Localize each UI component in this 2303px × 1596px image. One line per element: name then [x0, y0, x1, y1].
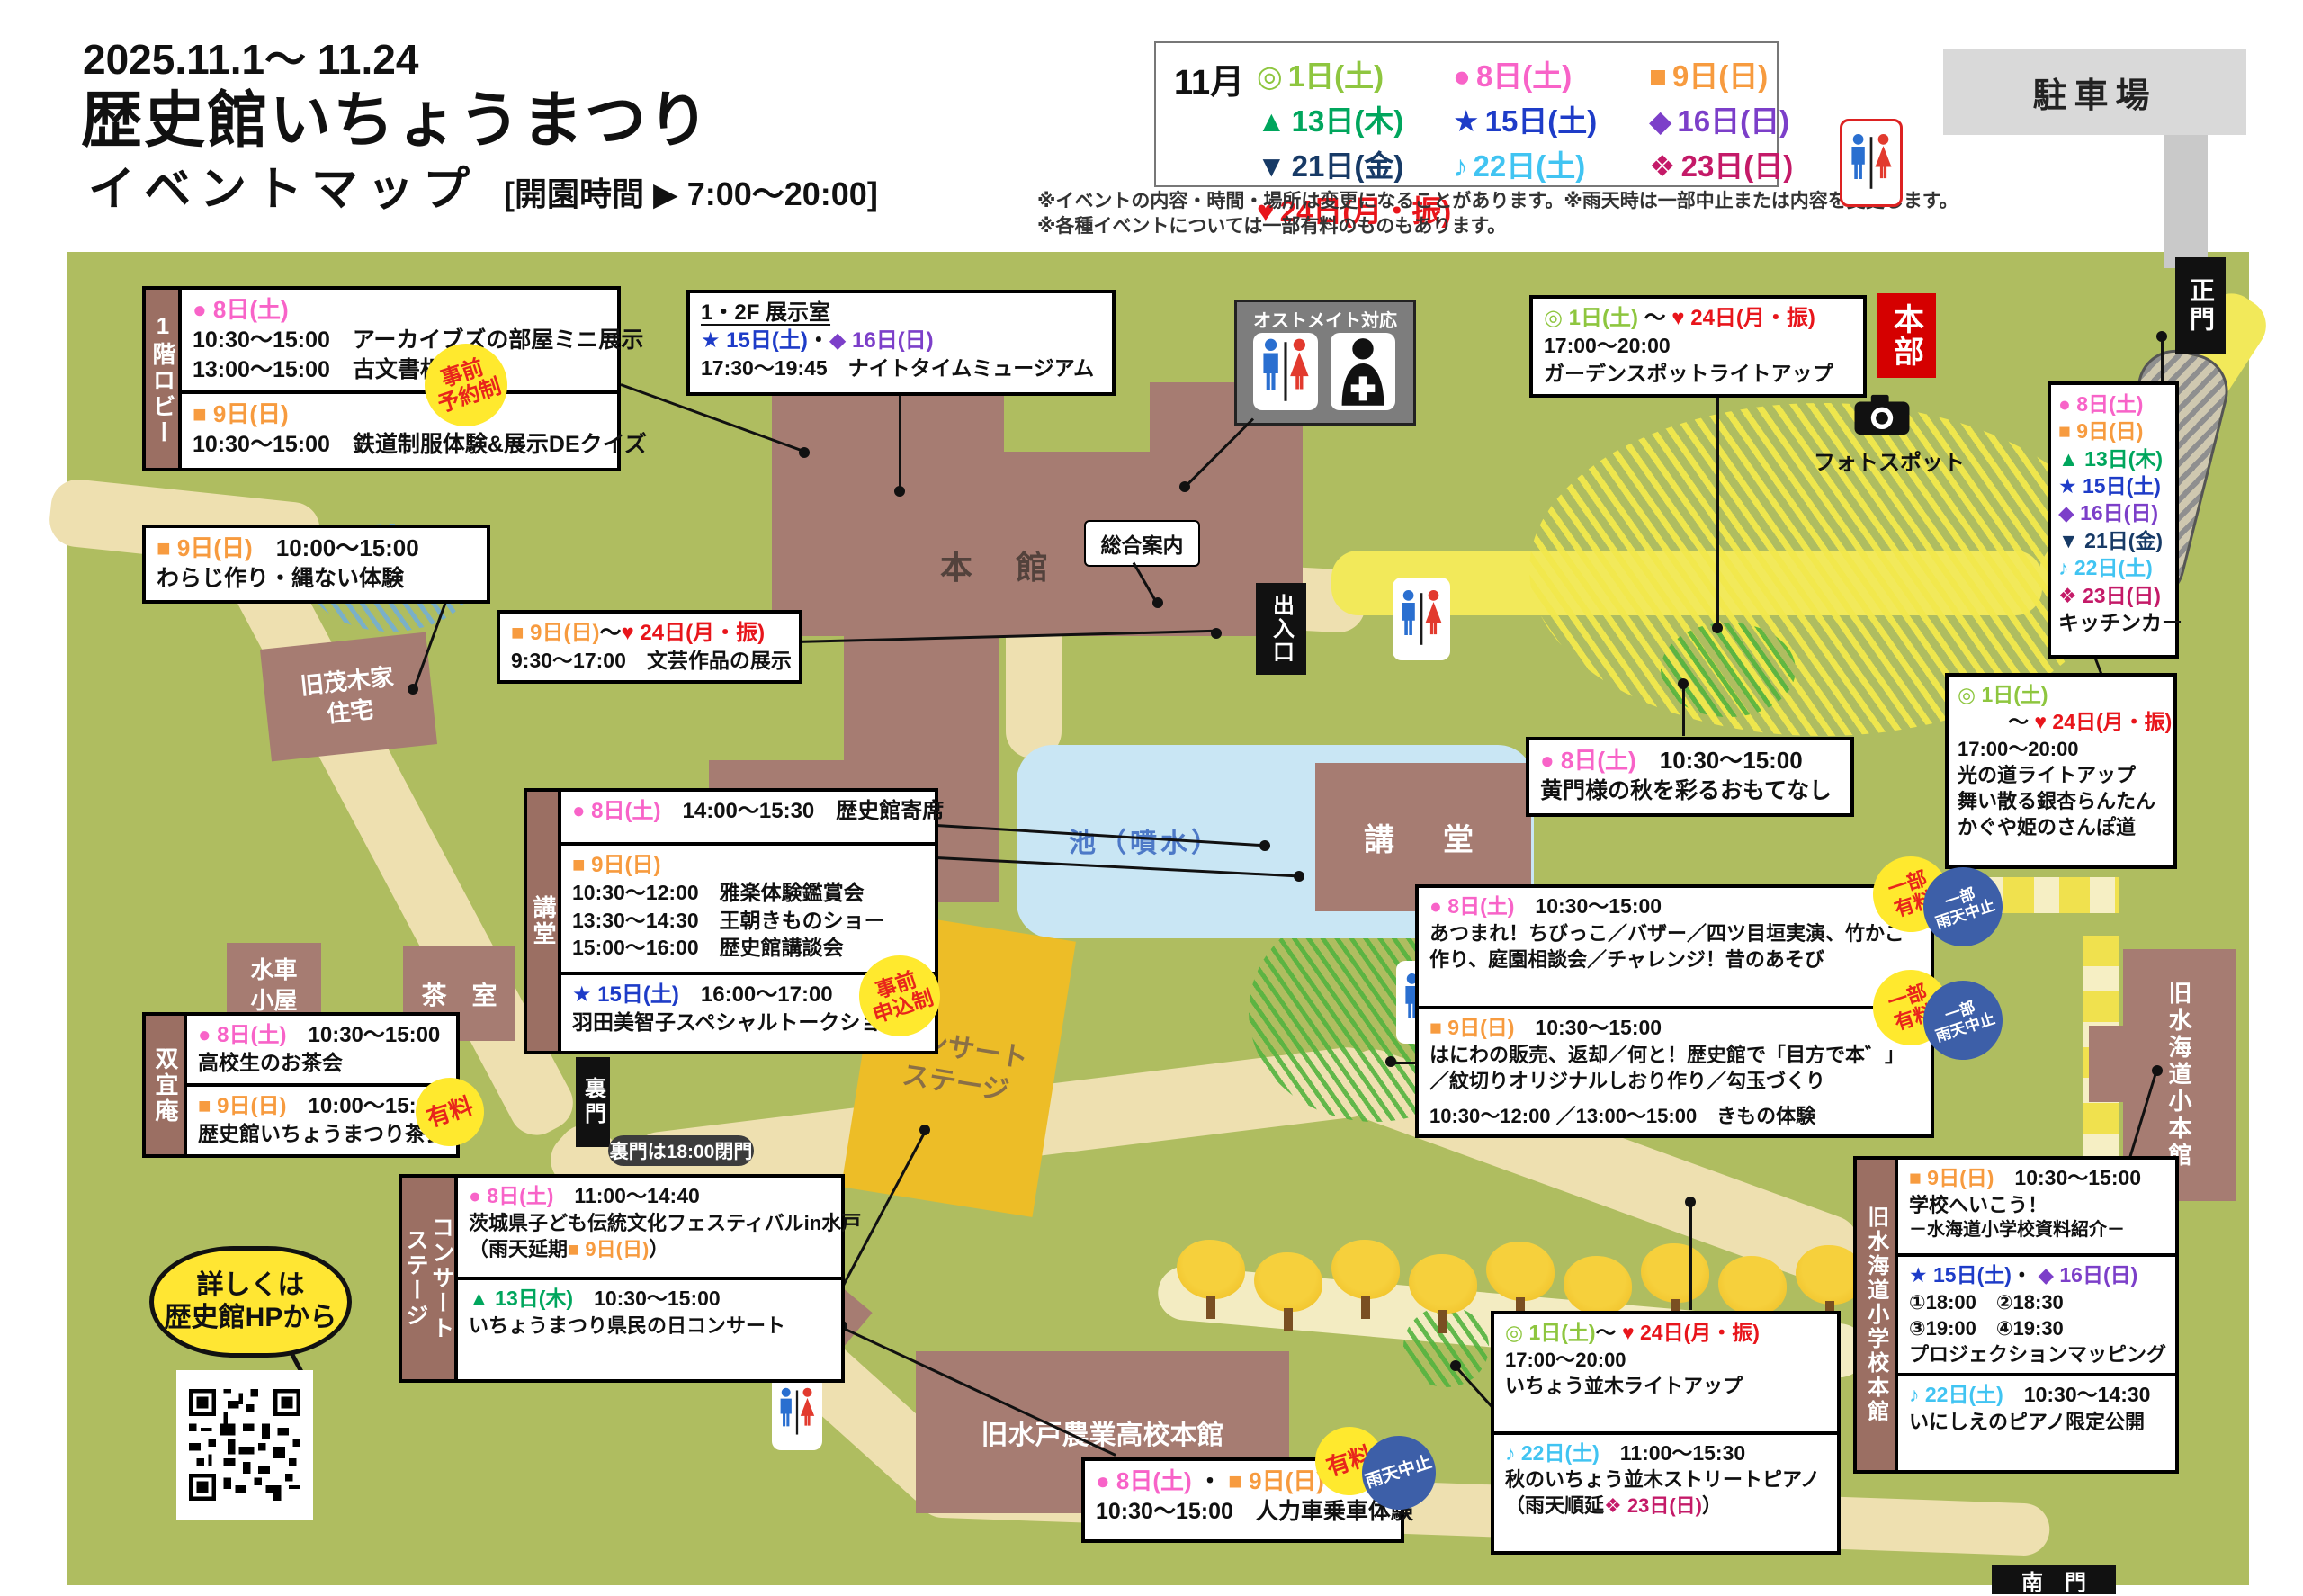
legend-day-22: ♪22日(土) [1453, 142, 1649, 185]
lobby-section-9th: ■ 9日(日) 10:30～15:00 鉄道制服体験&展示DEクイズ [182, 390, 617, 468]
ostomate-icon [1331, 333, 1395, 410]
legend-day-13: ▲13日(木) [1257, 97, 1453, 140]
back-gate-note: 裏門は18:00閉門 [608, 1135, 754, 1166]
concert-section-8th: ● 8日(土) 11:00～14:40 茨城県子ども伝統文化フェスティバルin水… [458, 1178, 841, 1277]
leader-line [1689, 1202, 1692, 1310]
disclaimer-notes: ※イベントの内容・時間・場所は変更になることがあります。※雨天時は一部中止または… [1037, 189, 1958, 240]
leader-dot [408, 684, 418, 695]
leader-line [899, 396, 901, 489]
bungei-section: ■ 9日(日)～♥ 24日(月・振) 9:30～17:00 文芸作品の展示 [500, 614, 799, 680]
event-box-namiki-piano: ◎ 1日(土)～ ♥ 24日(月・振) 17:00～20:00 いちょう並木ライ… [1491, 1311, 1841, 1555]
komon-section: ● 8日(土) 10:30～15:00 黄門様の秋を彩るおもてなし [1529, 740, 1850, 813]
day8-icon: ● [1453, 59, 1471, 93]
event-box-garden-lightup: ◎ 1日(土) ～ ♥ 24日(月・振) 17:00～20:00 ガーデンスポッ… [1529, 295, 1867, 398]
moteki-house: 旧茂木家 住宅 [260, 632, 437, 762]
legend-day-15: ★15日(土) [1453, 97, 1649, 140]
event-box-school: 旧水海道小学校本館 ■ 9日(日) 10:30～15:00 学校へいこう！ －水… [1853, 1156, 2179, 1474]
parking-area: 駐車場 [1943, 49, 2246, 135]
school-section-9th: ■ 9日(日) 10:30～15:00 学校へいこう！ －水海道小学校資料紹介－ [1898, 1160, 2175, 1253]
day22-icon: ♪ [1453, 149, 1468, 183]
legend-month: 11月 [1174, 54, 1244, 103]
disclaimer-line2: ※各種イベントについては一部有料のものもあります。 [1037, 214, 1958, 239]
day9-icon: ■ [1649, 59, 1667, 93]
green-zone-1 [1661, 623, 1796, 717]
leader-dot [1211, 628, 1222, 639]
open-hours: [開園時間 ▶ 7:00～20:00] [504, 168, 878, 215]
restroom-icon [1393, 578, 1450, 660]
mitsukaido-school-annex [2089, 1026, 2123, 1102]
school-strip-label: 旧水海道小学校本館 [1857, 1160, 1898, 1470]
legend-day-23: ❖23日(日) [1649, 142, 1845, 185]
poster-subtitle-row: イベントマップ [開園時間 ▶ 7:00～20:00] [88, 151, 878, 219]
main-hall-connector [844, 632, 999, 767]
day23-icon: ❖ [1649, 149, 1676, 183]
leader-dot [2152, 1065, 2163, 1076]
auditorium-section-9th: ■ 9日(日) 10:30～12:00 雅楽体験鑑賞会 13:30～14:30 … [561, 842, 935, 972]
leader-dot [1678, 678, 1689, 689]
day13-icon: ▲ [1257, 104, 1286, 138]
school-section-piano: ♪ 22日(土) 10:30～14:30 いにしえのピアノ限定公開 [1898, 1373, 2175, 1470]
leader-dot [1450, 1360, 1461, 1371]
ostomate-label: オストメイト対応 [1237, 306, 1413, 332]
street-piano-section: ♪ 22日(土) 11:00～15:30 秋のいちょう並木ストリートピアノ （雨… [1494, 1431, 1837, 1552]
event-map-poster: { "header": { "dates": "2025.11.1～ 11.24… [0, 0, 2303, 1594]
ginkgo-tree [1254, 1252, 1322, 1312]
hp-speech-bubble: 詳しくは 歴史館HPから [149, 1246, 352, 1358]
auditorium-strip-label: 講堂 [527, 792, 561, 1051]
day15-icon: ★ [1453, 104, 1480, 138]
waraji-section: ■ 9日(日) 10:00～15:00 わらじ作り・縄ない体験 [146, 528, 487, 600]
sogian-strip-label: 双宜庵 [146, 1016, 187, 1154]
leader-line [1682, 684, 1685, 736]
info-desk: 総合案内 [1084, 520, 1200, 567]
ginkgo-tree [1331, 1240, 1400, 1299]
leader-dot [1294, 871, 1304, 882]
legend-day-16: ◆16日(日) [1649, 97, 1845, 140]
ginkgo-tree [1409, 1254, 1477, 1314]
leader-dot [1259, 840, 1270, 851]
concert-section-13th: ▲ 13日(木) 10:30～15:00 いちょうまつり県民の日コンサート [458, 1277, 841, 1379]
leader-dot [1385, 1056, 1396, 1067]
restroom-icon [772, 1375, 822, 1450]
camera-icon [1853, 392, 1911, 437]
back-gate: 裏門 [576, 1057, 610, 1147]
leader-dot [2156, 331, 2167, 342]
plaza-section-9th: ■ 9日(日) 10:30～15:00 はにわの販売、返却／何と！歴史館で「目方… [1419, 1006, 1931, 1134]
entrance-gate: 出入口 [1256, 583, 1306, 675]
hikari-section: ◎ 1日(土) ～ ♥ 24日(月・振) 17:00～20:00 光の道ライトア… [1949, 677, 2173, 865]
exhibit-section: 1・2F 展示室 ★ 15日(土)・◆ 16日(日) 17:30～19:45 ナ… [690, 293, 1112, 392]
disclaimer-line1: ※イベントの内容・時間・場所は変更になることがあります。※雨天時は一部中止または… [1037, 189, 1958, 214]
legend-day-9: ■9日(日) [1649, 52, 1845, 95]
south-gate: 南 門 [1992, 1565, 2116, 1594]
day21-icon: ▼ [1257, 149, 1286, 183]
event-box-exhibit-room: 1・2F 展示室 ★ 15日(土)・◆ 16日(日) 17:30～19:45 ナ… [686, 290, 1116, 396]
festival-hq: 本部 [1877, 293, 1936, 378]
leader-line [1716, 398, 1719, 628]
event-box-komon: ● 8日(土) 10:30～15:00 黄門様の秋を彩るおもてなし [1526, 737, 1854, 817]
event-box-sogian: 双宜庵 ● 8日(土) 10:30～15:00 高校生のお茶会 ■ 9日(日) … [142, 1012, 460, 1158]
date-legend: 11月 ◎1日(土) ●8日(土) ■9日(日) ▲13日(木) ★15日(土)… [1154, 41, 1779, 187]
event-box-bungei: ■ 9日(日)～♥ 24日(月・振) 9:30～17:00 文芸作品の展示 [497, 610, 802, 684]
event-box-waraji: ■ 9日(日) 10:00～15:00 わらじ作り・縄ない体験 [142, 525, 490, 604]
parking-road [2164, 133, 2208, 268]
ginkgo-tree [1564, 1256, 1632, 1315]
kitchen-car-list: ● 8日(土) ■ 9日(日) ▲ 13日(木) ★ 15日(土) ◆ 16日(… [2051, 385, 2175, 655]
ginkgo-tree [1486, 1242, 1555, 1301]
poster-subtitle: イベントマップ [88, 151, 479, 219]
leader-line [2161, 336, 2164, 381]
leader-dot [1152, 597, 1163, 608]
leader-dot [894, 486, 905, 497]
ginkgo-tree [1641, 1243, 1709, 1303]
restroom-icon [1840, 119, 1903, 207]
sogian-section-8th: ● 8日(土) 10:30～15:00 高校生のお茶会 [187, 1016, 456, 1083]
legend-day-21: ▼21日(金) [1257, 142, 1453, 185]
leader-dot [919, 1125, 930, 1135]
concert-strip-label: コンサート ステージ [402, 1178, 458, 1379]
photo-spot-label: フォトスポット [1799, 444, 1979, 476]
legend-day-8: ●8日(土) [1453, 52, 1649, 95]
main-gate: 正門 [2175, 257, 2226, 354]
ostomate-restroom-box: オストメイト対応 [1234, 300, 1416, 426]
day16-icon: ◆ [1649, 104, 1671, 138]
event-box-lobby: 1階ロビー ● 8日(土) 10:30～15:00 アーカイブズの部屋ミニ展示 … [142, 286, 621, 471]
mitsukaido-school-label: 旧水海道小本館 [2163, 981, 2196, 1170]
leader-dot [1179, 481, 1190, 492]
lobby-section-8th: ● 8日(土) 10:30～15:00 アーカイブズの部屋ミニ展示 13:00～… [182, 290, 617, 390]
event-box-hikari: ◎ 1日(土) ～ ♥ 24日(月・振) 17:00～20:00 光の道ライトア… [1945, 673, 2177, 869]
namiki-lightup-section: ◎ 1日(土)～ ♥ 24日(月・振) 17:00～20:00 いちょう並木ライ… [1494, 1314, 1837, 1431]
qr-code [176, 1370, 313, 1520]
leader-dot [1712, 623, 1723, 633]
restroom-icon [1253, 333, 1318, 410]
event-box-kitchen-car: ● 8日(土) ■ 9日(日) ▲ 13日(木) ★ 15日(土) ◆ 16日(… [2048, 381, 2179, 659]
event-box-concert-stage: コンサート ステージ ● 8日(土) 11:00～14:40 茨城県子ども伝統文… [399, 1174, 845, 1383]
legend-day-1: ◎1日(土) [1257, 52, 1453, 95]
poster-title: 歴史館いちょうまつり [81, 70, 711, 159]
day1-icon: ◎ [1257, 59, 1283, 93]
leader-dot [1685, 1197, 1696, 1207]
lobby-strip-label: 1階ロビー [146, 290, 182, 468]
auditorium-section-8th: ● 8日(土) 14:00～15:30 歴史館寄席 [561, 792, 935, 842]
garden-section: ◎ 1日(土) ～ ♥ 24日(月・振) 17:00～20:00 ガーデンスポッ… [1533, 299, 1863, 394]
event-box-plaza: ● 8日(土) 10:30～15:00 あつまれ！ちびっこ／バザー／四ツ目垣実演… [1415, 884, 1934, 1138]
ginkgo-tree [1718, 1256, 1787, 1315]
leader-dot [799, 447, 810, 458]
main-hall-label: 本 館 [940, 542, 1053, 588]
ginkgo-tree [1177, 1240, 1245, 1299]
school-section-projection: ★ 15日(土)・ ◆ 16日(日) ①18:00 ②18:30 ③19:00 … [1898, 1253, 2175, 1373]
plaza-section-8th: ● 8日(土) 10:30～15:00 あつまれ！ちびっこ／バザー／四ツ目垣実演… [1419, 888, 1931, 1006]
